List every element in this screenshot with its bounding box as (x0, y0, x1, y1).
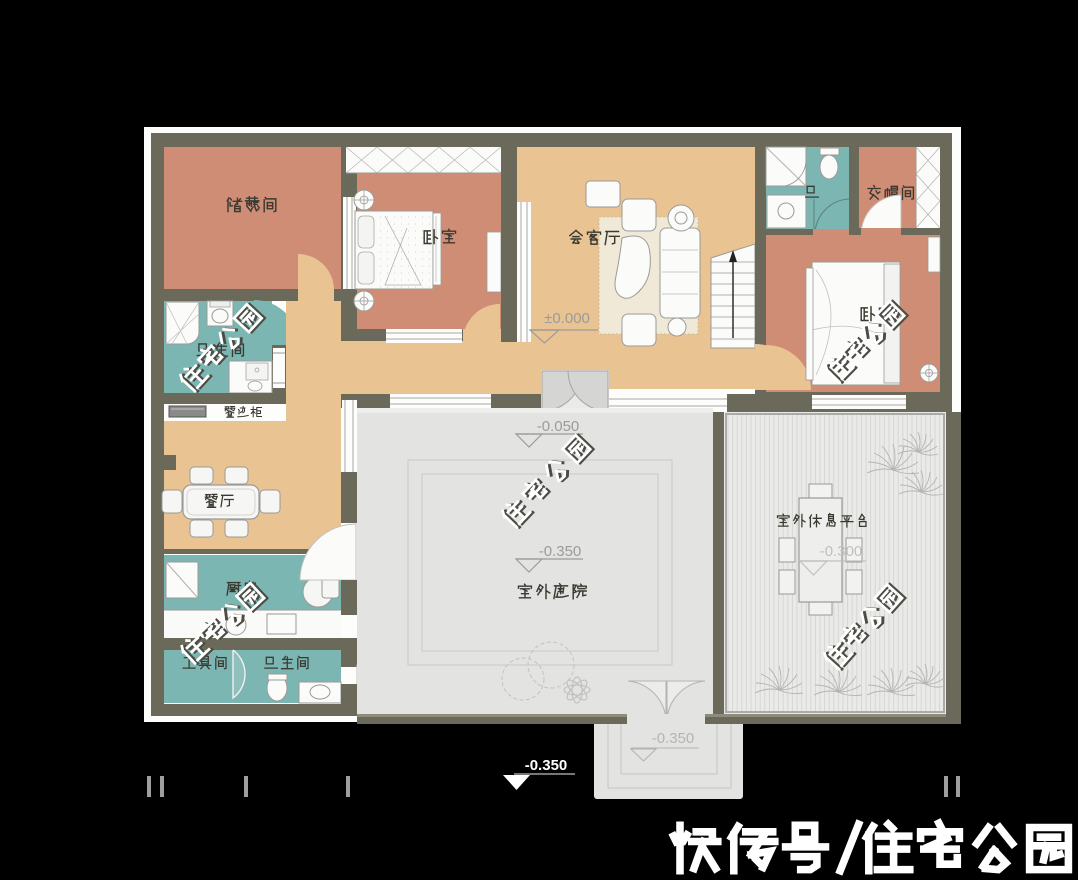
svg-text:-0.350: -0.350 (652, 730, 695, 747)
svg-text:-0.050: -0.050 (537, 418, 580, 435)
svg-text:-0.300: -0.300 (820, 543, 863, 560)
svg-text:±0.000: ±0.000 (544, 310, 590, 327)
svg-text:-0.350: -0.350 (525, 757, 568, 774)
svg-text:-0.350: -0.350 (539, 543, 582, 560)
